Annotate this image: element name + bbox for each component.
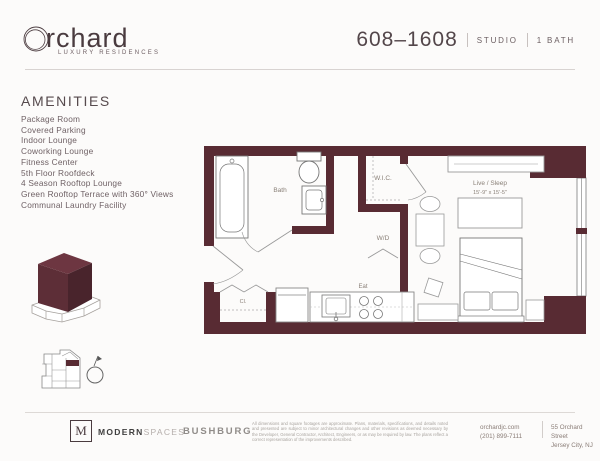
amenities-title: AMENITIES bbox=[21, 93, 111, 109]
toilet bbox=[297, 152, 321, 183]
unit-type: STUDIO bbox=[477, 36, 518, 45]
wic-door bbox=[406, 164, 426, 200]
wic-label: W.I.C. bbox=[374, 175, 392, 182]
phone: (201) 899-7111 bbox=[480, 432, 522, 441]
bushburg-logo: BUSHBURG bbox=[183, 426, 252, 437]
floorplan: Bath W.I.C. W/D Live / Sleep 15'-9" x 15… bbox=[196, 142, 592, 340]
amenity-item: Communal Laundry Facility bbox=[21, 200, 173, 211]
unit-number: 608–1608 bbox=[356, 28, 457, 52]
contact-block: orchardjc.com (201) 899-7111 bbox=[480, 423, 522, 441]
hall-closet bbox=[220, 285, 268, 310]
keyplan-outline bbox=[42, 350, 80, 388]
amenity-item: Green Rooftop Terrace with 360° Views bbox=[21, 189, 173, 200]
bath-sink bbox=[302, 186, 326, 214]
address-line1: 55 Orchard Street bbox=[551, 423, 600, 441]
amenity-item: Fitness Center bbox=[21, 157, 173, 168]
refrigerator bbox=[276, 288, 308, 322]
live-sleep-dims: 15'-9" x 15'-5" bbox=[473, 190, 507, 196]
kitchen-sink bbox=[322, 295, 350, 321]
amenity-item: 5th Floor Roofdeck bbox=[21, 168, 173, 179]
closet-label: Cl. bbox=[240, 299, 247, 305]
disclaimer-text: All dimensions and square footages are a… bbox=[252, 421, 448, 442]
wd-bifold-doors bbox=[368, 249, 398, 258]
building-axon-illustration bbox=[26, 244, 110, 338]
bath-label: Bath bbox=[273, 187, 287, 194]
amenities-list: Package Room Covered Parking Indoor Loun… bbox=[21, 114, 173, 210]
eat-label: Eat bbox=[358, 284, 367, 290]
header-rule bbox=[25, 69, 575, 70]
divider bbox=[527, 33, 528, 47]
bed bbox=[458, 238, 524, 322]
website: orchardjc.com bbox=[480, 423, 522, 432]
amenity-item: Covered Parking bbox=[21, 125, 173, 136]
keyplan-unit-highlight bbox=[66, 360, 79, 366]
brand-tagline: LUXURY RESIDENCES bbox=[58, 50, 160, 56]
address-line2: Jersey City, NJ bbox=[551, 441, 600, 450]
bathtub bbox=[216, 156, 248, 238]
dresser bbox=[418, 304, 458, 320]
nightstand bbox=[526, 300, 544, 320]
window-right bbox=[577, 178, 586, 296]
wd-label: W/D bbox=[377, 235, 390, 242]
amenity-item: Indoor Lounge bbox=[21, 135, 173, 146]
amenity-item: Coworking Lounge bbox=[21, 146, 173, 157]
amenity-item: 4 Season Rooftop Lounge bbox=[21, 178, 173, 189]
live-sleep-label: Live / Sleep bbox=[473, 180, 507, 187]
modernspaces-logo: MODERNSPACES bbox=[98, 427, 185, 437]
unit-bath: 1 BATH bbox=[537, 36, 575, 45]
modernspaces-light: SPACES bbox=[144, 427, 186, 437]
dining-set bbox=[416, 197, 444, 264]
footer-rule bbox=[25, 412, 575, 413]
divider bbox=[467, 33, 468, 47]
ptac-unit bbox=[448, 156, 544, 172]
footer-divider bbox=[542, 421, 543, 438]
address-block: 55 Orchard Street Jersey City, NJ bbox=[551, 423, 600, 450]
amenity-item: Package Room bbox=[21, 114, 173, 125]
keyplan-and-compass bbox=[36, 348, 108, 394]
modernspaces-logo-icon: M bbox=[70, 420, 92, 442]
modernspaces-bold: MODERN bbox=[98, 427, 144, 437]
entry-door bbox=[213, 246, 243, 284]
accent-chair bbox=[424, 278, 443, 297]
unit-info: 608–1608 STUDIO 1 BATH bbox=[356, 28, 575, 52]
media-console bbox=[458, 198, 522, 228]
bath-door bbox=[242, 230, 292, 252]
compass-icon bbox=[87, 356, 103, 383]
